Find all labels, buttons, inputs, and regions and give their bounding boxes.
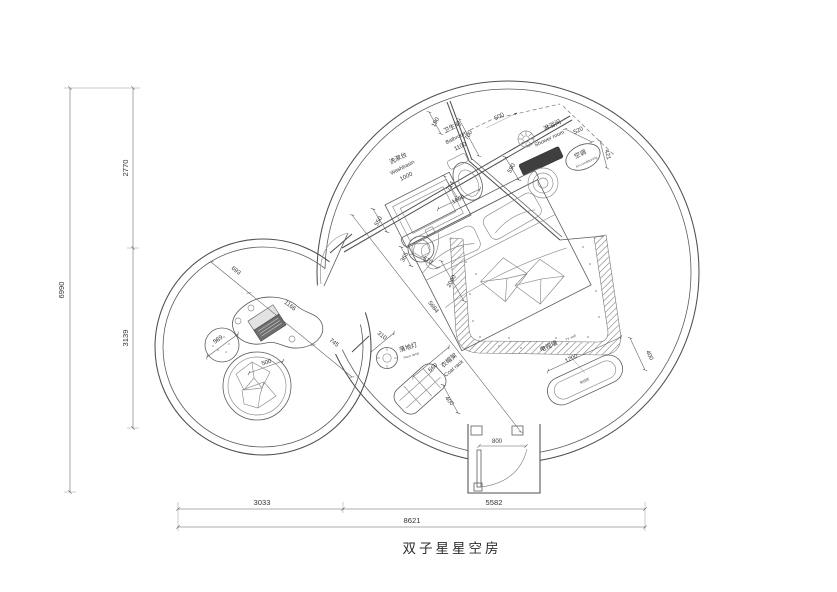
shower-partition	[519, 146, 564, 175]
dim-tv-length: 1200	[564, 353, 579, 364]
dim-ottoman: 589	[213, 334, 225, 345]
dim-190: 190	[431, 116, 441, 128]
platform-stipple	[465, 246, 600, 349]
dim-8621: 8621	[404, 516, 421, 525]
plan-title: 双子星星空房	[403, 541, 502, 556]
dim-lounge-a: 693	[230, 266, 242, 277]
washbasin-labels: 洗漱台 Washbasin 1000	[388, 150, 416, 182]
bed-platform	[450, 235, 621, 355]
mattress	[408, 180, 591, 351]
label-lamp-en: Floor lamp	[403, 351, 420, 360]
throw-pillow	[510, 253, 571, 310]
floor-plan-drawing: 800	[0, 0, 837, 592]
main-round-room	[317, 81, 699, 463]
dim-washbasin: 1000	[399, 171, 414, 183]
ottoman: 589	[205, 328, 239, 362]
label-tv-cabinet: 电视柜	[579, 376, 591, 385]
dimension-left: 2770 3139 6990	[57, 88, 140, 492]
floor-plan-page: 800	[0, 0, 837, 592]
bathroom-walls	[342, 101, 604, 252]
dim-tv-depth: 400	[644, 350, 654, 362]
ac-unit: 空调 Air-conditioning	[528, 139, 604, 198]
entrance: 800	[468, 424, 540, 494]
dim-door: 800	[492, 439, 503, 445]
dim-2770: 2770	[121, 160, 130, 177]
dimension-bottom: 3033 5582 8621	[178, 498, 645, 531]
dim-lounge-table: 1166	[283, 300, 297, 313]
label-tv-wall-en: TV wall	[565, 333, 577, 341]
dim-chair: 500	[261, 358, 273, 367]
shower-head-symbol	[518, 131, 534, 147]
dim-5582: 5582	[486, 498, 503, 507]
round-chair: 500	[223, 352, 291, 420]
dim-421: 421	[603, 149, 612, 161]
dim-6990: 6990	[57, 282, 66, 299]
laptop	[248, 305, 286, 341]
label-ac-cn: 空调	[573, 148, 588, 160]
dim-3139: 3139	[121, 330, 130, 347]
throw-pillow	[476, 251, 534, 307]
blanket-edge	[426, 214, 555, 280]
dim-3033: 3033	[254, 498, 271, 507]
dim-lamp: 310	[376, 331, 388, 342]
floor-lamp: 310 落地灯 Floor lamp	[371, 331, 420, 369]
kidney-table	[232, 297, 322, 348]
dim-rack-depth: 400	[443, 396, 454, 408]
dim-590: 590	[507, 162, 517, 174]
coat-rack: 660 衣帽架 Coat rack 400	[390, 347, 465, 418]
dim-500: 500	[494, 112, 506, 122]
dim-520: 520	[573, 126, 585, 136]
